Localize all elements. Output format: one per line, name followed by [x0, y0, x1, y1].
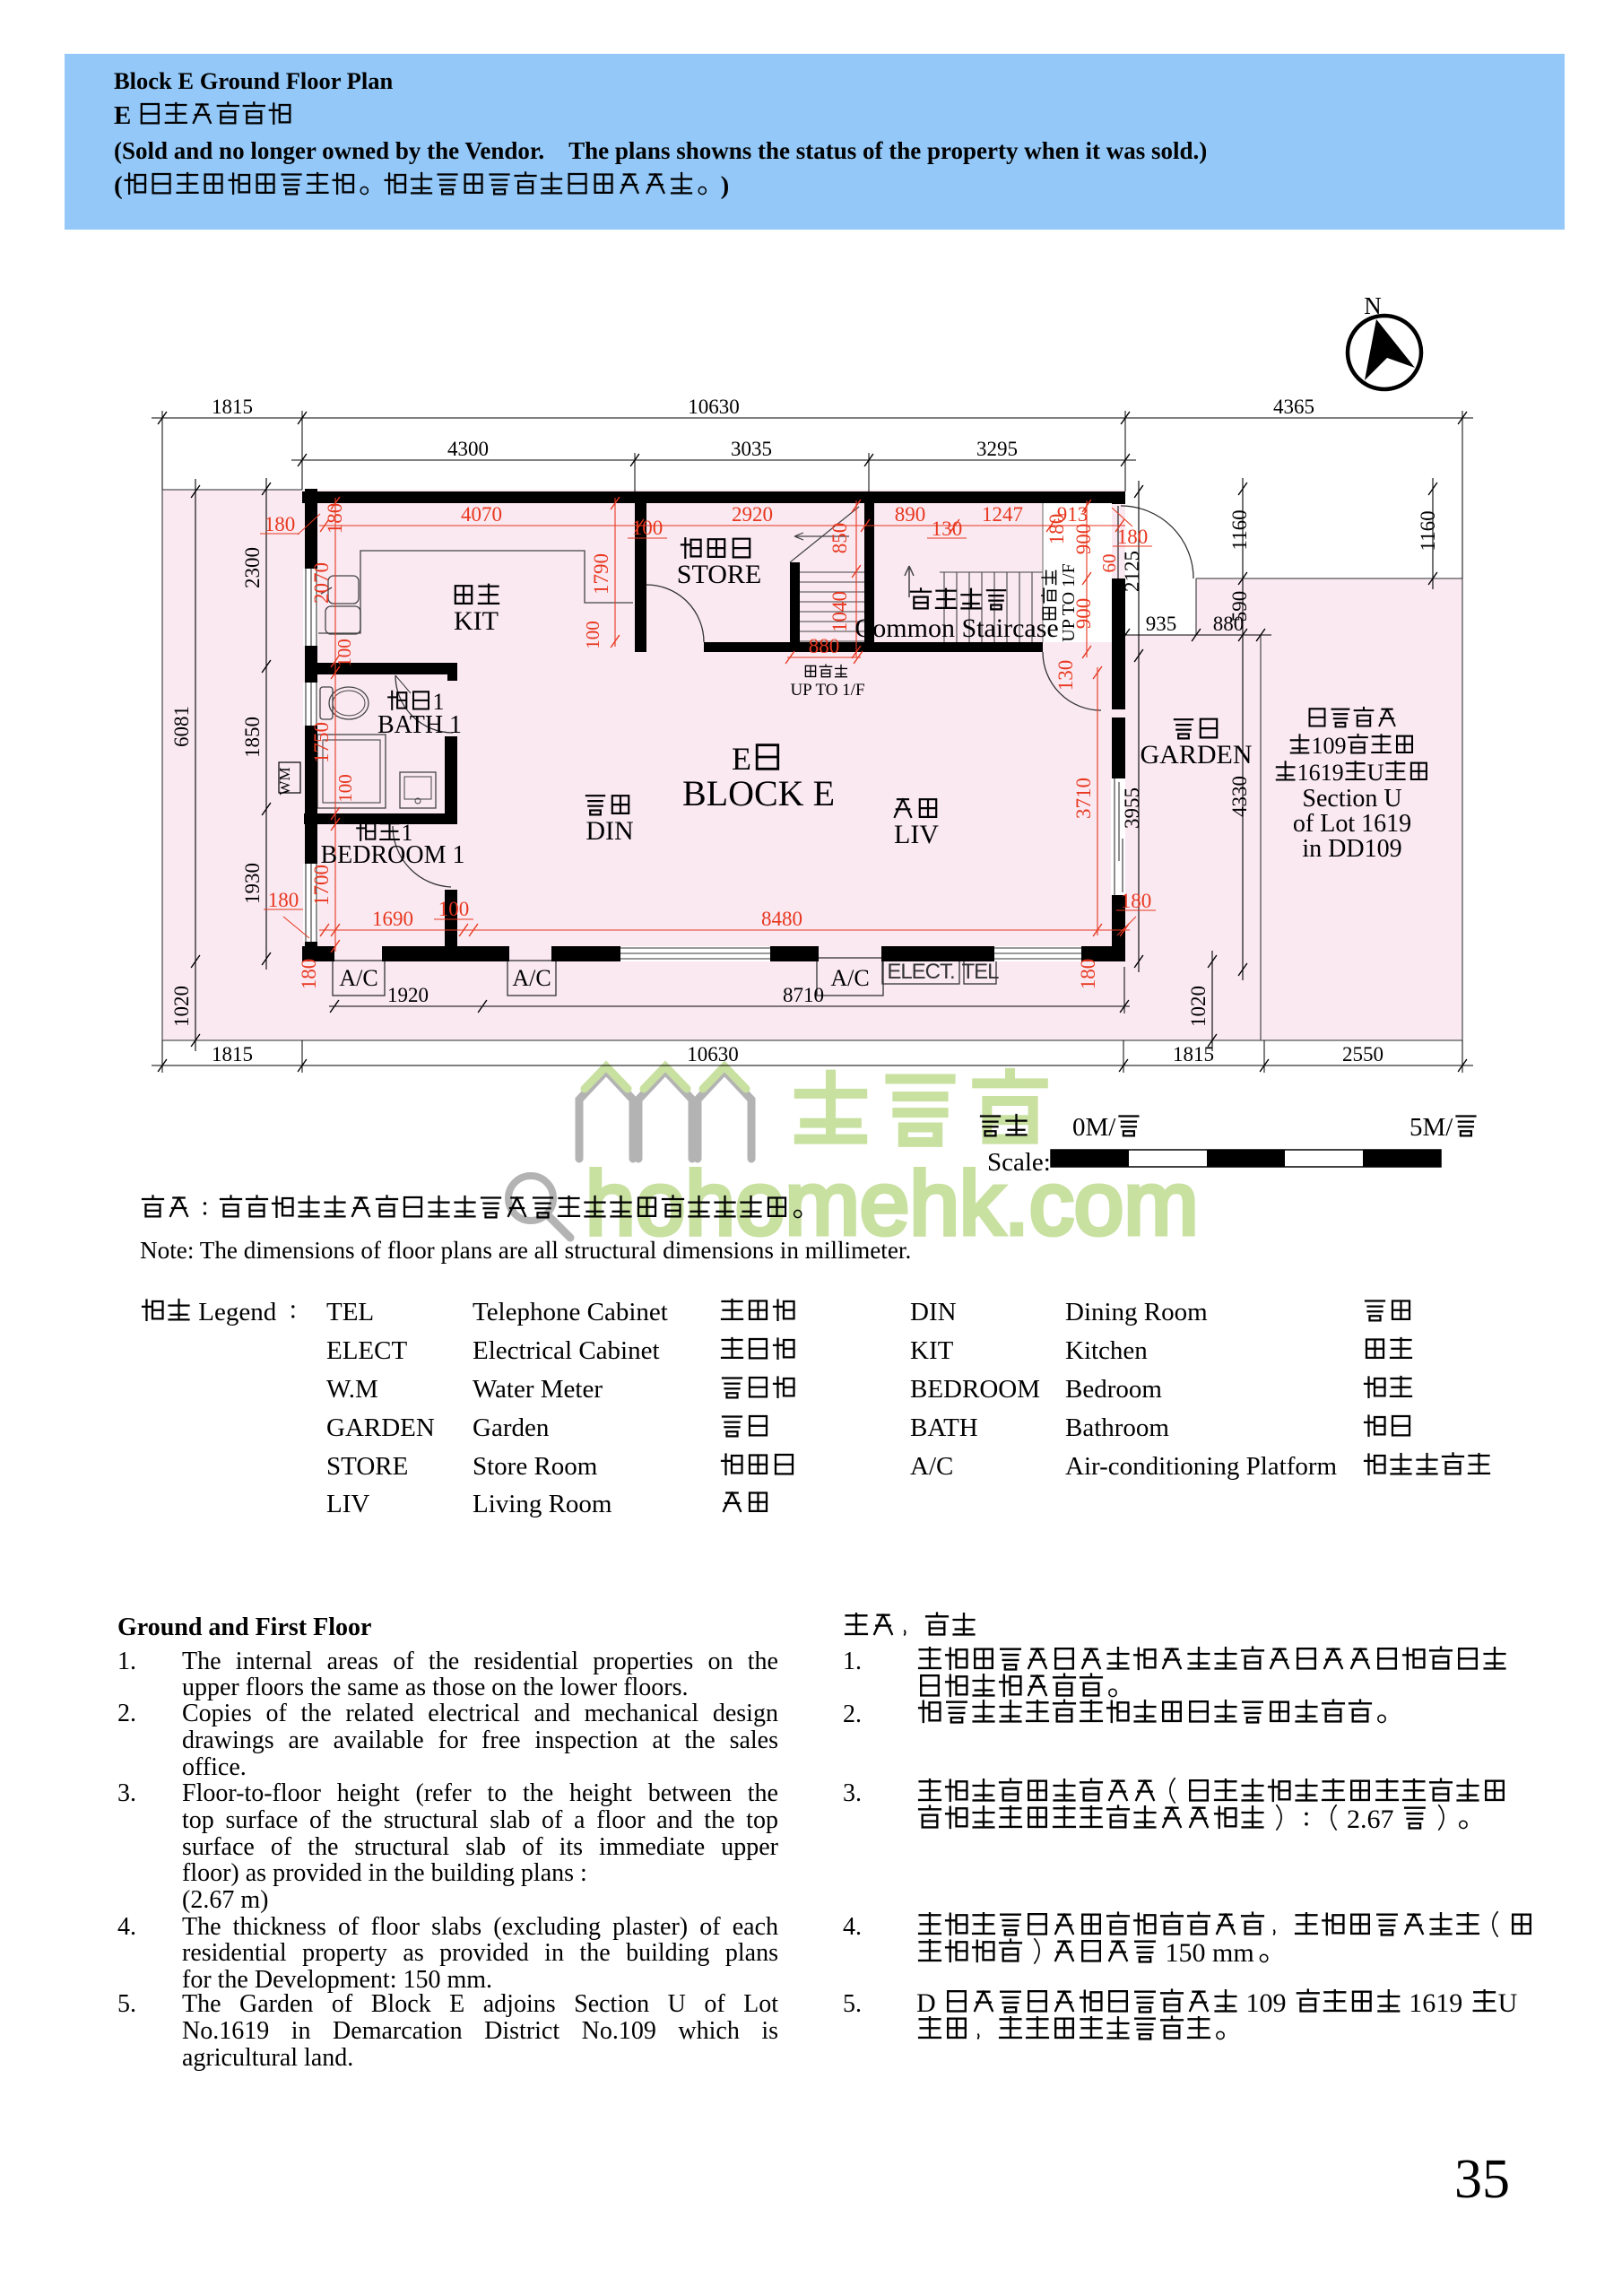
- svg-text:5.: 5.: [117, 1990, 136, 2018]
- svg-text:5.: 5.: [843, 1990, 862, 2018]
- svg-text:900: 900: [1072, 524, 1095, 555]
- svg-text:1160: 1160: [1228, 509, 1251, 550]
- svg-text:agricultural land.: agricultural land.: [182, 2044, 353, 2072]
- svg-text:UP TO 1/F: UP TO 1/F: [1059, 563, 1079, 641]
- svg-text:LIV: LIV: [894, 820, 939, 849]
- svg-text:1.: 1.: [843, 1648, 862, 1675]
- svg-text:2125: 2125: [1121, 551, 1143, 592]
- svg-text:N: N: [1364, 292, 1382, 319]
- svg-text:ELECT.: ELECT.: [887, 960, 954, 984]
- svg-text:Legend: Legend: [192, 1298, 277, 1326]
- svg-text:W.M: W.M: [326, 1375, 378, 1404]
- svg-text:No.1619 in Demarcation Distric: No.1619 in Demarcation District No.109 w…: [182, 2017, 778, 2045]
- svg-text:109: 109: [1239, 1988, 1293, 2018]
- svg-text:100: 100: [334, 639, 355, 667]
- svg-text:130: 130: [1054, 660, 1077, 691]
- svg-text:ELECT: ELECT: [326, 1336, 407, 1365]
- svg-text:The Garden of Block E adjoins: The Garden of Block E adjoins Section U …: [182, 1990, 778, 2018]
- svg-text:A/C: A/C: [512, 965, 551, 991]
- svg-text:180: 180: [1121, 890, 1152, 912]
- svg-text:STORE: STORE: [677, 560, 761, 589]
- svg-text:BLOCK E: BLOCK E: [682, 773, 835, 813]
- svg-text:3035: 3035: [731, 438, 772, 460]
- svg-text:Copies of the related electric: Copies of the related electrical and mec…: [182, 1700, 778, 1727]
- svg-text:(2.67 m): (2.67 m): [182, 1886, 268, 1914]
- svg-text:5M/: 5M/: [1409, 1113, 1453, 1142]
- svg-text:in DD109: in DD109: [1302, 835, 1401, 863]
- svg-text:4300: 4300: [447, 438, 489, 460]
- svg-text:Air-conditioning Platform: Air-conditioning Platform: [1065, 1452, 1338, 1481]
- svg-text:Store Room: Store Room: [473, 1452, 598, 1481]
- svg-text:180: 180: [324, 503, 346, 535]
- svg-text:(Sold and no longer owned by t: (Sold and no longer owned by the Vendor.…: [114, 137, 1207, 164]
- svg-text:1619: 1619: [1297, 760, 1344, 786]
- svg-text:150 mm: 150 mm: [1158, 1938, 1254, 1968]
- svg-text:of Lot 1619: of Lot 1619: [1293, 810, 1411, 838]
- svg-text:KIT: KIT: [454, 606, 499, 636]
- svg-text:TEL: TEL: [326, 1298, 374, 1326]
- svg-text:1920: 1920: [387, 984, 429, 1006]
- svg-text:U: U: [1367, 760, 1384, 786]
- svg-text:(: (: [114, 171, 123, 200]
- svg-text:office.: office.: [182, 1753, 247, 1781]
- svg-text:1619: 1619: [1402, 1988, 1470, 2018]
- svg-text:Living Room: Living Room: [473, 1490, 612, 1518]
- svg-text:UP TO 1/F: UP TO 1/F: [790, 681, 864, 700]
- svg-text:4365: 4365: [1273, 396, 1314, 418]
- svg-text:WM: WM: [276, 767, 293, 795]
- svg-text:1850: 1850: [241, 717, 264, 758]
- svg-text:Common Staircase: Common Staircase: [854, 613, 1058, 643]
- svg-text:DIN: DIN: [910, 1298, 957, 1326]
- svg-text:590: 590: [1228, 591, 1251, 622]
- svg-text:35: 35: [1454, 2149, 1510, 2210]
- svg-text:1790: 1790: [590, 553, 612, 595]
- svg-text:BATH: BATH: [910, 1413, 978, 1442]
- svg-text:2070: 2070: [310, 562, 333, 604]
- svg-text:The thickness of floor slabs (: The thickness of floor slabs (excluding …: [182, 1913, 778, 1941]
- svg-text:BATH 1: BATH 1: [377, 711, 462, 739]
- svg-text:A/C: A/C: [339, 965, 377, 991]
- svg-text:A/C: A/C: [830, 965, 869, 991]
- svg-text:180: 180: [1077, 959, 1099, 990]
- svg-text:E: E: [114, 101, 138, 130]
- svg-text:3955: 3955: [1121, 787, 1143, 829]
- svg-text:3.: 3.: [117, 1779, 136, 1807]
- svg-text:8710: 8710: [783, 984, 824, 1006]
- svg-text:Section U: Section U: [1302, 785, 1401, 813]
- svg-text:100: 100: [632, 517, 664, 539]
- svg-text:top surface of the structural: top surface of the structural slab of a …: [182, 1806, 778, 1834]
- svg-text:3.: 3.: [843, 1779, 862, 1807]
- svg-text:1700: 1700: [310, 865, 333, 906]
- svg-text:Electrical Cabinet: Electrical Cabinet: [473, 1336, 660, 1365]
- svg-text:180: 180: [298, 959, 320, 990]
- svg-text:1930: 1930: [241, 863, 264, 904]
- svg-text:1815: 1815: [212, 396, 253, 418]
- svg-text:4070: 4070: [461, 503, 502, 526]
- svg-text:850: 850: [828, 523, 851, 554]
- svg-text:The internal areas of the resi: The internal areas of the residential pr…: [182, 1648, 778, 1675]
- svg-text:Bedroom: Bedroom: [1065, 1375, 1162, 1404]
- svg-text:100: 100: [582, 621, 603, 649]
- svg-text:180: 180: [1045, 514, 1068, 545]
- svg-text:floor) as provided in the buil: floor) as provided in the building plans…: [182, 1859, 587, 1887]
- svg-text:2.: 2.: [843, 1700, 862, 1728]
- svg-text:STORE: STORE: [326, 1452, 408, 1481]
- svg-text:1247: 1247: [982, 503, 1023, 526]
- svg-text:180: 180: [1117, 526, 1149, 548]
- svg-text:DIN: DIN: [585, 816, 633, 846]
- svg-text:Telephone Cabinet: Telephone Cabinet: [473, 1298, 668, 1326]
- svg-text:60: 60: [1098, 554, 1120, 573]
- svg-text:): ): [721, 171, 730, 200]
- svg-text:2300: 2300: [241, 547, 264, 588]
- svg-text:1815: 1815: [212, 1043, 253, 1065]
- svg-text:3710: 3710: [1072, 778, 1095, 819]
- svg-text:1160: 1160: [1417, 510, 1439, 551]
- svg-text:KIT: KIT: [910, 1336, 954, 1365]
- svg-text:2.: 2.: [117, 1700, 136, 1727]
- svg-text:U: U: [1498, 1988, 1518, 2018]
- svg-text:LIV: LIV: [326, 1490, 369, 1518]
- svg-text:TEL: TEL: [961, 960, 999, 984]
- svg-text:BEDROOM: BEDROOM: [910, 1375, 1040, 1404]
- svg-text:1690: 1690: [372, 908, 413, 930]
- svg-text:1040: 1040: [828, 591, 851, 632]
- svg-text:GARDEN: GARDEN: [326, 1413, 435, 1442]
- svg-text:109: 109: [1312, 733, 1347, 759]
- svg-text:1.: 1.: [117, 1648, 136, 1675]
- svg-text:drawings are available for fre: drawings are available for free inspecti…: [182, 1726, 778, 1754]
- svg-text:A/C: A/C: [910, 1452, 953, 1481]
- svg-text:Scale:: Scale:: [987, 1148, 1051, 1177]
- svg-text:3295: 3295: [976, 438, 1018, 460]
- svg-text:BEDROOM 1: BEDROOM 1: [320, 841, 464, 869]
- svg-text:surface of the structural slab: surface of the structural slab of its im…: [182, 1833, 779, 1861]
- svg-text:1020: 1020: [170, 986, 193, 1027]
- svg-text:4330: 4330: [1228, 776, 1251, 817]
- svg-text:Dining Room: Dining Room: [1065, 1298, 1208, 1326]
- svg-text:D: D: [916, 1988, 942, 2018]
- svg-text:180: 180: [265, 513, 296, 535]
- svg-text:Kitchen: Kitchen: [1065, 1336, 1148, 1365]
- svg-text:Block E Ground Floor Plan: Block E Ground Floor Plan: [114, 67, 393, 94]
- svg-text:0M/: 0M/: [1072, 1113, 1116, 1142]
- svg-text:100: 100: [438, 898, 470, 920]
- svg-text:Water Meter: Water Meter: [473, 1375, 603, 1404]
- svg-text:10630: 10630: [687, 1043, 739, 1065]
- svg-text:6081: 6081: [170, 706, 193, 747]
- svg-text:100: 100: [334, 774, 356, 803]
- svg-text:upper floors the same as those: upper floors the same as those on the lo…: [182, 1674, 689, 1701]
- svg-text:Floor-to-floor height (refer t: Floor-to-floor height (refer to the heig…: [182, 1779, 778, 1807]
- svg-text:Ground and First Floor: Ground and First Floor: [117, 1613, 371, 1641]
- svg-text:10630: 10630: [688, 396, 740, 418]
- svg-text:180: 180: [268, 889, 299, 911]
- svg-text:935: 935: [1146, 613, 1177, 635]
- svg-text:2920: 2920: [732, 503, 773, 526]
- svg-text:Garden: Garden: [473, 1413, 550, 1442]
- svg-text:GARDEN: GARDEN: [1141, 740, 1253, 770]
- svg-text:Note: The dimensions of floor: Note: The dimensions of floor plans are …: [140, 1237, 911, 1264]
- svg-text:residential property as provid: residential property as provided in the …: [182, 1939, 778, 1967]
- svg-text:8480: 8480: [761, 908, 802, 930]
- svg-text:130: 130: [932, 517, 963, 540]
- svg-text:E: E: [732, 741, 751, 777]
- svg-text:1020: 1020: [1187, 986, 1210, 1027]
- svg-text:880: 880: [809, 635, 840, 657]
- svg-text:1750: 1750: [310, 722, 333, 763]
- svg-text:4.: 4.: [843, 1913, 862, 1941]
- svg-text:890: 890: [895, 503, 926, 526]
- svg-text:4.: 4.: [117, 1913, 136, 1941]
- svg-text:2.67: 2.67: [1347, 1805, 1401, 1834]
- svg-text:Bathroom: Bathroom: [1065, 1413, 1169, 1442]
- svg-text:2550: 2550: [1342, 1043, 1383, 1065]
